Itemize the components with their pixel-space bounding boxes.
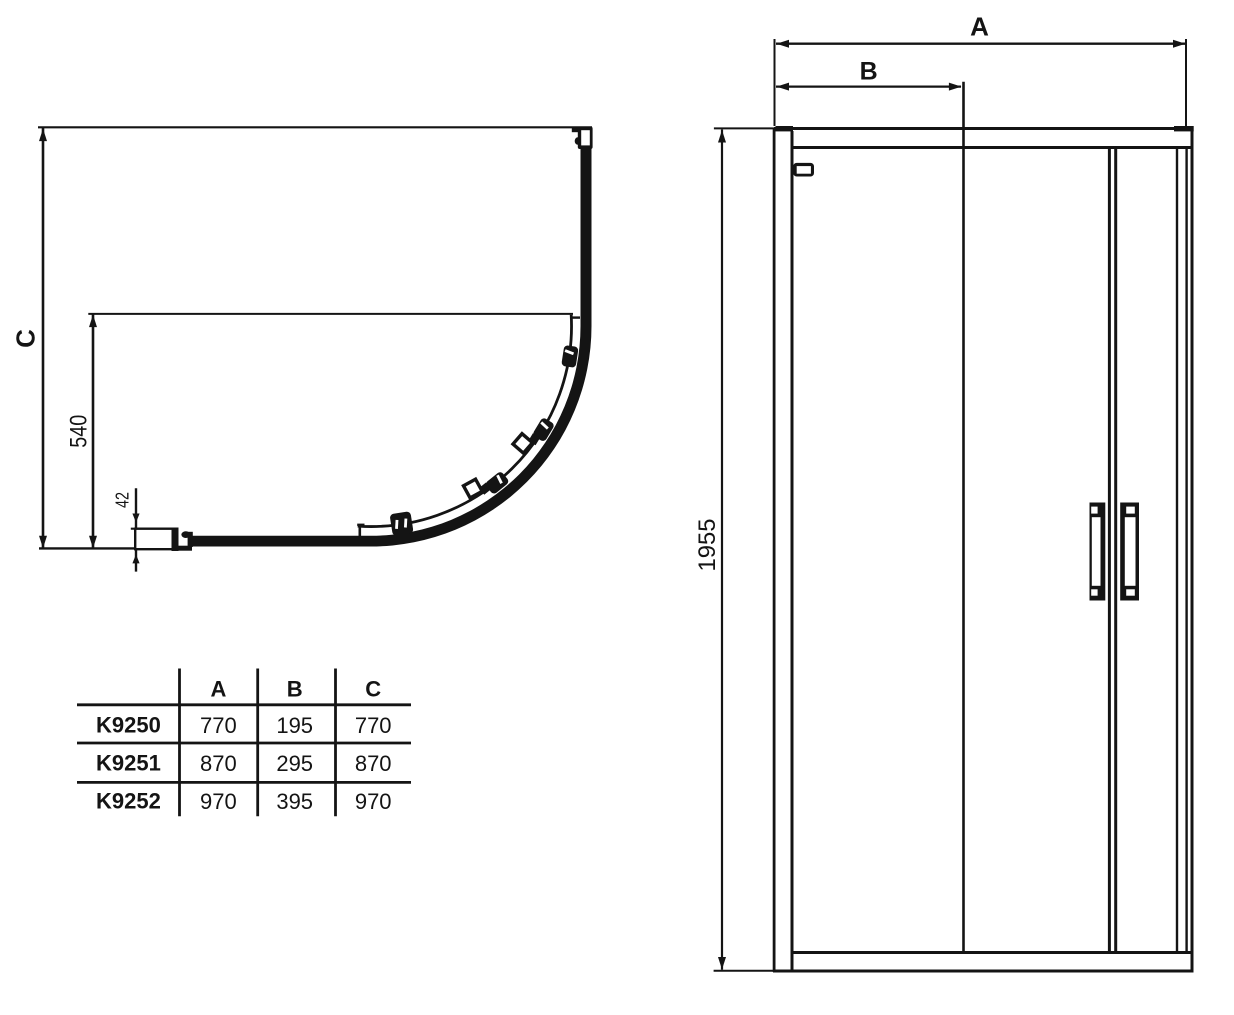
svg-text:42: 42 xyxy=(112,492,132,508)
svg-text:K9250: K9250 xyxy=(96,713,161,738)
svg-text:770: 770 xyxy=(200,713,237,738)
svg-text:970: 970 xyxy=(355,789,392,814)
svg-text:C: C xyxy=(365,676,381,701)
svg-text:K9252: K9252 xyxy=(96,789,161,814)
svg-text:870: 870 xyxy=(355,751,392,776)
svg-text:540: 540 xyxy=(66,415,93,448)
svg-text:K9251: K9251 xyxy=(96,751,161,776)
svg-text:1955: 1955 xyxy=(694,519,721,572)
svg-text:A: A xyxy=(210,676,226,701)
svg-text:770: 770 xyxy=(355,713,392,738)
svg-text:B: B xyxy=(287,676,303,701)
svg-text:195: 195 xyxy=(276,713,313,738)
svg-text:295: 295 xyxy=(276,751,313,776)
svg-text:A: A xyxy=(970,11,989,41)
svg-text:C: C xyxy=(11,329,41,348)
svg-text:970: 970 xyxy=(200,789,237,814)
svg-text:B: B xyxy=(860,57,878,85)
svg-text:395: 395 xyxy=(276,789,313,814)
svg-text:870: 870 xyxy=(200,751,237,776)
